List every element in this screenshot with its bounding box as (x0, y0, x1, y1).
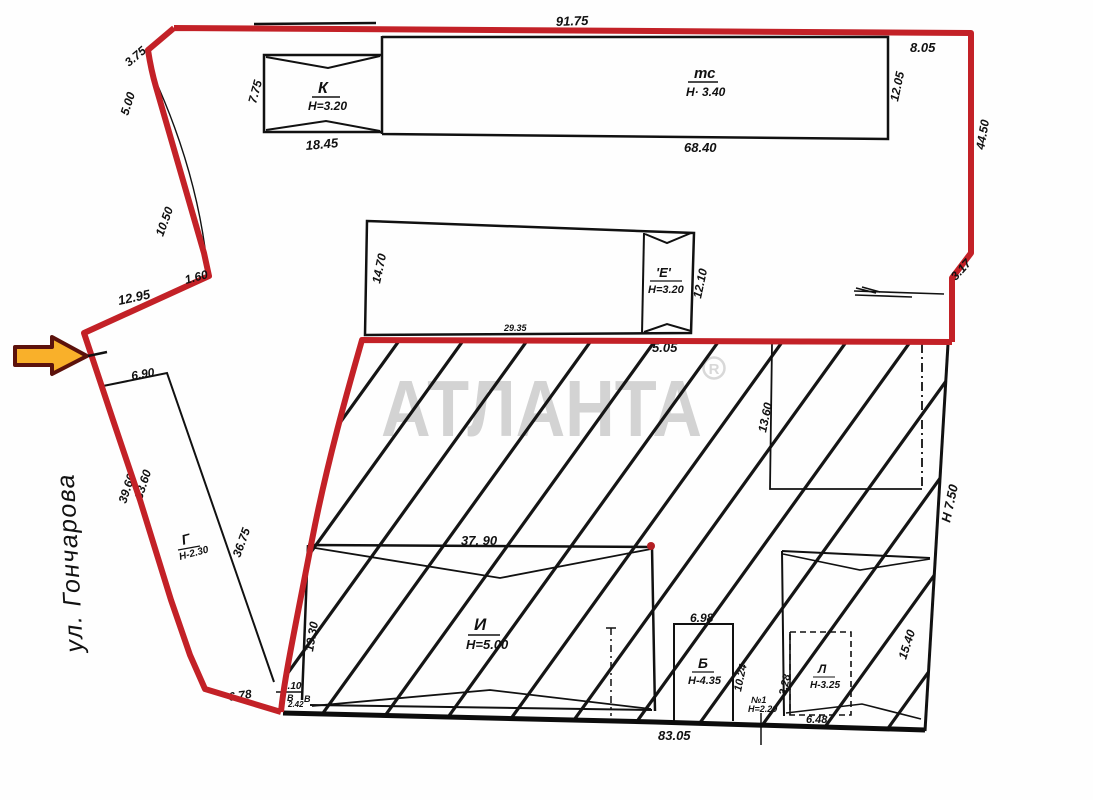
svg-text:29.35: 29.35 (503, 323, 528, 333)
svg-text:тс: тс (694, 65, 716, 82)
svg-text:Л: Л (817, 662, 827, 676)
svg-text:15.40: 15.40 (896, 628, 919, 661)
svg-text:В: В (304, 694, 311, 704)
svg-text:ул. Гончарова: ул. Гончарова (52, 474, 89, 655)
svg-text:10.24: 10.24 (732, 663, 749, 692)
svg-text:6.98: 6.98 (690, 611, 714, 625)
svg-text:1.60: 1.60 (183, 267, 209, 287)
svg-text:Н· 3.40: Н· 3.40 (686, 85, 726, 99)
svg-text:44.50: 44.50 (973, 118, 992, 151)
svg-text:91.75: 91.75 (556, 13, 590, 29)
svg-text:83.05: 83.05 (658, 728, 691, 743)
svg-text:18.45: 18.45 (305, 135, 339, 153)
svg-text:8.05: 8.05 (910, 40, 936, 55)
svg-text:И: И (474, 615, 487, 634)
svg-text:Н-4.35: Н-4.35 (688, 675, 722, 687)
svg-text:Н=5.00: Н=5.00 (466, 637, 509, 652)
svg-text:3.75: 3.75 (122, 43, 149, 69)
svg-text:36.75: 36.75 (230, 526, 254, 559)
svg-text:Н=2.20: Н=2.20 (748, 704, 777, 714)
svg-text:6.90: 6.90 (130, 365, 156, 383)
svg-text:14.70: 14.70 (369, 252, 389, 285)
svg-text:7.75: 7.75 (245, 78, 265, 104)
svg-text:Н=3.20: Н=3.20 (648, 284, 685, 296)
svg-text:10.50: 10.50 (153, 205, 177, 238)
svg-text:5.00: 5.00 (118, 90, 139, 117)
svg-text:37. 90: 37. 90 (461, 533, 498, 548)
svg-text:К: К (318, 80, 329, 97)
svg-text:3.28: 3.28 (777, 672, 793, 696)
svg-text:13.60: 13.60 (755, 401, 775, 434)
svg-text:12.05: 12.05 (887, 70, 907, 103)
svg-text:Н=3.20: Н=3.20 (308, 99, 347, 113)
svg-text:'Е': 'Е' (656, 265, 672, 280)
svg-text:Б: Б (698, 655, 708, 671)
svg-text:Н-3.25: Н-3.25 (810, 680, 840, 691)
svg-text:68.40: 68.40 (684, 140, 717, 155)
svg-text:Н 7.50: Н 7.50 (938, 482, 961, 523)
svg-text:R: R (709, 361, 720, 378)
svg-text:2.42: 2.42 (287, 700, 304, 709)
svg-text:Г: Г (180, 530, 194, 548)
